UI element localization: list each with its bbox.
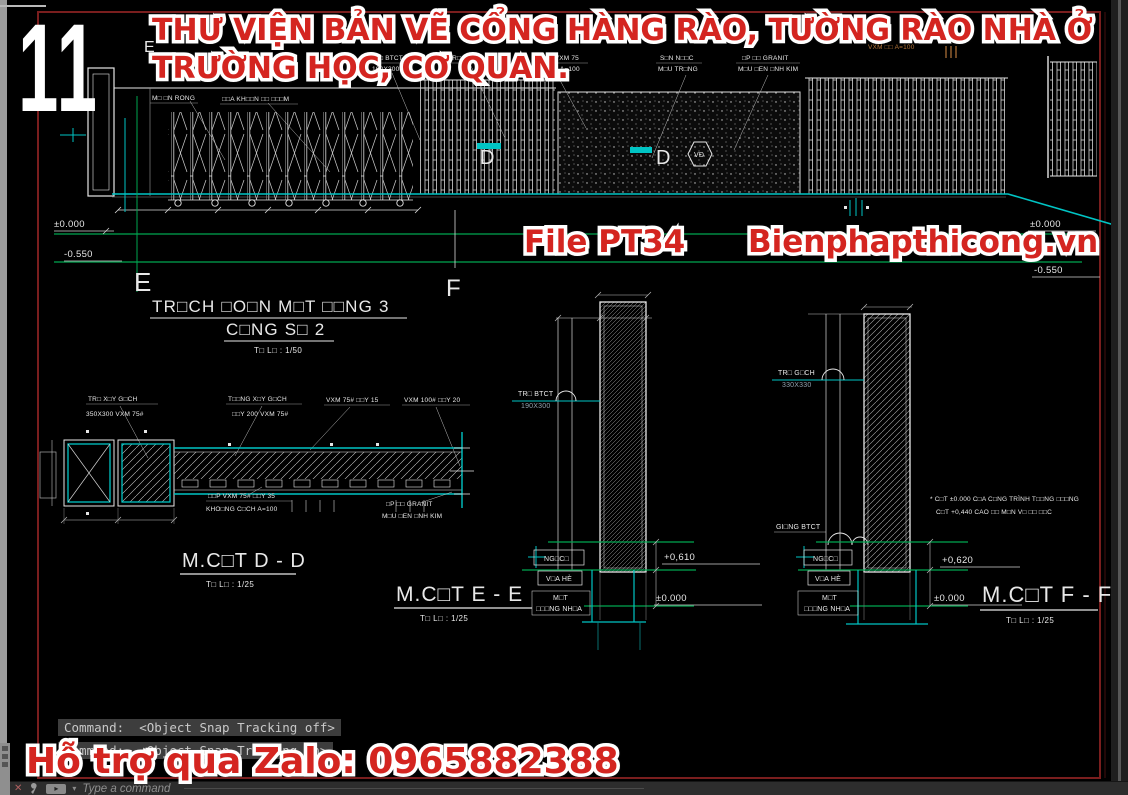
note-line: * C□T ±0.000 C□A C□NG TRÌNH T□□NG □□□NG xyxy=(930,494,1079,503)
section-ff: TR□ G□CH 330X330 GI□NG BTCT NG□C□ V□A HÈ… xyxy=(772,304,1112,625)
grid-letter-e: E xyxy=(134,267,151,297)
autocad-window: ±0.000 -0.550 ±0.000 -0.550 E E F D D VĐ xyxy=(0,0,1128,795)
command-input-bar[interactable]: ✕ ▸ ▾ Type a command xyxy=(0,781,1128,795)
watermark-file-label: File PT34 File PT34 xyxy=(524,227,685,258)
mini-icon-strip xyxy=(0,743,10,795)
vd-label: VĐ xyxy=(694,152,704,159)
elevation-scale: T□ L□ : 1/50 xyxy=(254,346,302,355)
level-label: +0,620 xyxy=(942,555,973,566)
giang-label: GI□NG BTCT xyxy=(776,524,821,531)
callout: KHO□NG C□CH A=100 xyxy=(206,506,278,513)
viahe-label: V□A HÈ xyxy=(815,574,841,583)
section-ff-title: M.C□T F - F xyxy=(982,582,1112,607)
watermark-fill: THƯ VIỆN BẢN VẼ CỔNG HÀNG RÀO, TƯỜNG RÀO… xyxy=(152,13,1093,48)
post-size-label: 190X300 xyxy=(521,403,550,410)
viahe-label: V□A HÈ xyxy=(546,574,572,583)
mat-label: M□T xyxy=(553,595,568,602)
post-label: TR□ G□CH xyxy=(778,370,815,377)
watermark-title-line2: TRƯỜNG HỌC, CƠ QUAN. TRƯỜNG HỌC, CƠ QUAN… xyxy=(152,54,569,84)
callout: 350X300 VXM 75# xyxy=(86,411,144,418)
chevron-down-icon[interactable]: ▾ xyxy=(72,784,76,793)
callout: M□U □EN □NH KIM xyxy=(382,513,442,520)
callout: M□ □N RONG xyxy=(152,95,195,102)
fence-bars-right xyxy=(805,78,1008,194)
section-dd-title: M.C□T D - D xyxy=(182,550,306,572)
post-label: TR□ BTCT xyxy=(518,391,554,398)
sheet-number: 11 xyxy=(18,6,99,131)
callout: □P □□ GRANIT xyxy=(386,501,433,508)
command-input-underline xyxy=(184,788,644,789)
scrollbar-thumb[interactable] xyxy=(1118,0,1121,795)
tile-row xyxy=(182,480,450,487)
post-size-label: 330X330 xyxy=(782,382,811,389)
mat-label2: □□□NG NH□A xyxy=(804,606,850,613)
callout: M□U □EN □NH KIM xyxy=(738,66,798,73)
elevation-subtitle: C□NG S□ 2 xyxy=(226,320,325,339)
section-ee-scale: T□ L□ : 1/25 xyxy=(420,614,468,623)
watermark-title-line1: THƯ VIỆN BẢN VẼ CỔNG HÀNG RÀO, TƯỜNG RÀO… xyxy=(152,16,1093,46)
callout: VXM 75# □□Y 15 xyxy=(326,397,379,404)
granite-wall xyxy=(558,92,800,194)
window-left-edge xyxy=(0,0,7,795)
fence-bars-left xyxy=(420,80,555,194)
level-label: ±0.000 xyxy=(54,219,85,230)
section-ee-title: M.C□T E - E xyxy=(396,583,523,606)
level-label: -0.550 xyxy=(1034,265,1063,276)
section-dd: TR□ X□Y G□CH 350X300 VXM 75# T□□NG X□Y G… xyxy=(40,396,474,589)
ngach-label: NG□C□ xyxy=(813,556,839,563)
level-label: ±0.000 xyxy=(934,593,965,604)
elevation-title: TR□CH □O□N M□T □□NG 3 xyxy=(152,297,390,316)
grid-letter-f: F xyxy=(446,275,461,302)
callout: □□P VXM 75# □□Y 35 xyxy=(208,493,275,500)
watermark-fill: File PT34 xyxy=(524,224,685,260)
watermark-fill: Hỗ trợ qua Zalo: 0965882388 xyxy=(26,741,619,782)
callout: M□U TR□NG xyxy=(658,66,698,73)
callout: □□Y 200 VXM 75# xyxy=(232,411,288,418)
note-line: C□T +0,440 CAO □□ M□N V□ □□ □□C xyxy=(936,509,1052,516)
level-label: +0,610 xyxy=(664,552,695,563)
command-history-line1: Command: <Object Snap Tracking off> xyxy=(58,719,341,736)
watermark-support-line: Hỗ trợ qua Zalo: 0965882388 Hỗ trợ qua Z… xyxy=(26,744,619,780)
customize-wrench-icon[interactable] xyxy=(28,783,40,795)
callout: S□N N□□C xyxy=(660,55,694,62)
watermark-fill: TRƯỜNG HỌC, CƠ QUAN. xyxy=(152,51,569,86)
callout: □□A KH□□N □□ □□□M xyxy=(222,96,289,103)
grid-letter-d2: D xyxy=(656,147,671,169)
watermark-fill: Bienphapthicong.vn xyxy=(748,224,1098,260)
command-icon[interactable]: ▸ xyxy=(46,784,66,794)
elevation-drawing: ±0.000 -0.550 ±0.000 -0.550 E E F D D VĐ xyxy=(54,39,1128,355)
section-ff-scale: T□ L□ : 1/25 xyxy=(1006,616,1054,625)
command-input[interactable]: Type a command xyxy=(82,783,170,795)
grid-letter-d1: D xyxy=(480,147,495,169)
vertical-scrollbar[interactable] xyxy=(1111,0,1128,795)
callout: T□□NG X□Y G□CH xyxy=(228,396,287,403)
model-space-canvas[interactable]: ±0.000 -0.550 ±0.000 -0.550 E E F D D VĐ xyxy=(0,0,1128,795)
callout: VXM 100# □□Y 20 xyxy=(404,397,460,404)
callout: TR□ X□Y G□CH xyxy=(88,396,138,403)
mat-label2: □□□NG NH□A xyxy=(536,606,582,613)
fence-bars-far-right xyxy=(1048,56,1097,178)
ngach-label: NG□C□ xyxy=(544,556,570,563)
callout: □P □□ GRANIT xyxy=(742,55,789,62)
watermark-website: Bienphapthicong.vn Bienphapthicong.vn xyxy=(748,227,1098,258)
level-label: ±0.000 xyxy=(656,593,687,604)
section-dd-scale: T□ L□ : 1/25 xyxy=(206,580,254,589)
close-icon[interactable]: ✕ xyxy=(14,784,22,794)
mat-label: M□T xyxy=(822,595,837,602)
level-label: -0.550 xyxy=(64,249,93,260)
